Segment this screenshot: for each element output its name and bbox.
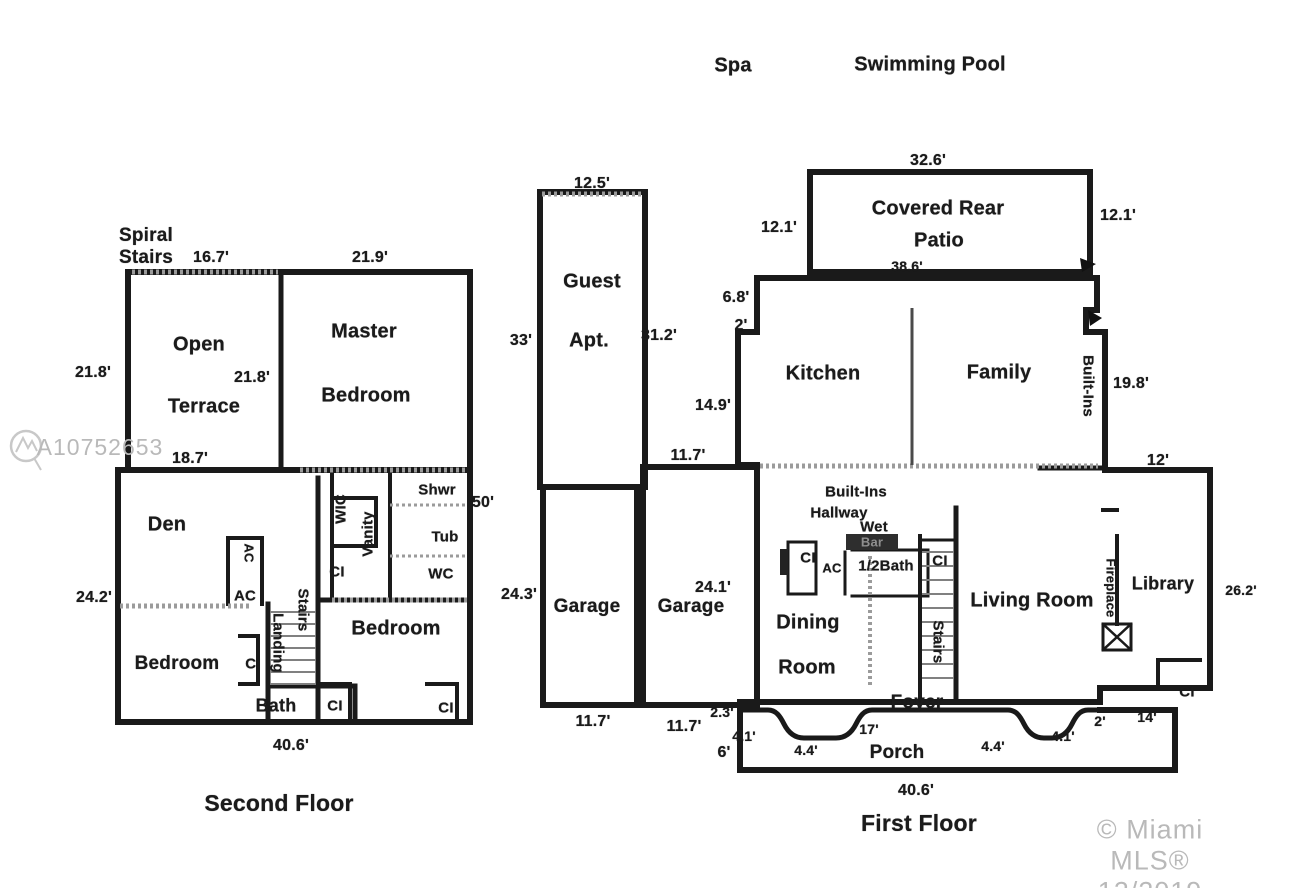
dim-library-bottom: 14': [1137, 709, 1157, 725]
label-hallway-built-ins: Built-Ins: [825, 483, 887, 500]
label-spiral-stairs: Spiral Stairs: [119, 225, 173, 269]
dim-porch-left-depth: 6': [717, 744, 730, 762]
label-garage-right: Garage: [658, 596, 725, 618]
label-built-ins-wall: Built-Ins: [1079, 355, 1096, 417]
dim-garage-right-bottom: 11.7': [666, 718, 701, 736]
label-family: Family: [967, 362, 1032, 385]
label-sf-ac-lower: AC: [234, 587, 256, 604]
dim-guest-left: 33': [510, 332, 532, 350]
label-sf-landing: Landing: [269, 613, 286, 673]
floor-plan-drawing: [0, 0, 1309, 888]
dim-porch-2: 2': [1094, 713, 1106, 729]
watermark-copyright: © Miami MLS® 12/2019: [1071, 814, 1230, 888]
hall-closet-door: [780, 549, 788, 575]
dim-ff-bottom: 40.6': [898, 782, 934, 800]
label-guest-apt-1: Guest: [563, 271, 621, 294]
dim-family-right: 19.8': [1113, 375, 1149, 393]
label-sf-ci-bath: CI: [327, 697, 342, 714]
dim-terrace-inner: 21.8': [234, 369, 270, 387]
label-sf-ci-right: CI: [438, 699, 453, 716]
label-covered-rear-patio-1: Covered Rear: [872, 198, 1004, 221]
dim-sf-left-side: 24.2': [76, 589, 112, 607]
dim-garage-right-top: 11.7': [670, 447, 705, 465]
label-vanity: Vanity: [359, 511, 376, 556]
dim-guest-top: 12.5': [574, 175, 610, 193]
label-half-bath: 1/2Bath: [858, 557, 914, 574]
dim-patio-top: 32.6': [910, 152, 946, 170]
dim-sf-top-left: 16.7': [193, 249, 229, 267]
dim-patio-right: 12.1': [1100, 207, 1136, 225]
wall-porch-scallop: [744, 710, 1098, 738]
label-dining-room-2: Room: [778, 657, 835, 680]
dim-kitchen-step-a: 6.8': [723, 289, 750, 307]
dim-porch-center: 17': [859, 721, 879, 737]
wall-patio: [810, 172, 1090, 272]
dim-garage-left-bottom: 11.7': [575, 713, 610, 731]
label-fireplace: Fireplace: [1103, 559, 1118, 618]
dim-garage-left-side: 24.3': [501, 586, 537, 604]
label-sf-ac-upper: AC: [241, 543, 256, 562]
label-wet-bar-2: Bar: [861, 536, 883, 551]
dim-porch-step: 2.3': [710, 704, 734, 720]
label-porch: Porch: [870, 742, 925, 764]
dim-library-top: 12': [1147, 452, 1169, 470]
title-second-floor: Second Floor: [204, 790, 353, 816]
dim-porch-44-left: 4.4': [794, 742, 818, 758]
label-sf-ci-hall: CI: [329, 563, 344, 580]
label-ff-ac: AC: [822, 562, 841, 577]
label-covered-rear-patio-2: Patio: [914, 230, 964, 253]
label-dining-room-1: Dining: [776, 612, 839, 635]
dim-sf-top-right: 21.9': [352, 249, 388, 267]
label-ff-stairs: Stairs: [929, 621, 946, 664]
label-open-terrace-2: Terrace: [168, 396, 240, 419]
label-living-room: Living Room: [970, 590, 1093, 613]
dim-terrace-left: 21.8': [75, 364, 111, 382]
label-bath: Bath: [256, 696, 297, 717]
label-kitchen: Kitchen: [786, 363, 861, 386]
dim-library-right: 26.2': [1225, 582, 1257, 598]
floor-plan-page: Spa Swimming Pool A10752653 © Miami MLS®…: [0, 0, 1309, 888]
dim-kitchen-left: 14.9': [695, 397, 731, 415]
label-swimming-pool: Swimming Pool: [854, 54, 1006, 77]
dim-sf-right-side: 50': [472, 494, 494, 512]
dim-patio-bottom: 38.6': [891, 258, 923, 274]
dim-guest-right: 31.2': [641, 327, 677, 345]
label-ff-ci-hall: CI: [800, 549, 815, 566]
label-wic: WIC: [332, 494, 349, 524]
label-foyer: Foyer: [891, 692, 944, 714]
dim-porch-41-left: 4.1': [732, 728, 756, 744]
label-hallway: Hallway: [810, 504, 867, 521]
dim-porch-41-right: 4.1': [1051, 728, 1075, 744]
label-bedroom-right: Bedroom: [351, 618, 440, 641]
label-garage-left: Garage: [554, 596, 621, 618]
label-wet-bar-1: Wet: [860, 518, 888, 535]
label-sf-ci-bedroom: CI: [245, 655, 260, 672]
label-guest-apt-2: Apt.: [569, 330, 609, 353]
label-open-terrace-1: Open: [173, 334, 225, 357]
dim-garage-right-width: 24.1': [695, 579, 731, 597]
dim-kitchen-step-b: 2': [734, 317, 747, 335]
dim-patio-left: 12.1': [761, 219, 797, 237]
wall-first-floor-outline: [738, 278, 1210, 702]
label-spa: Spa: [714, 55, 751, 78]
mls-logo-mountains: [16, 438, 37, 452]
label-bedroom-left: Bedroom: [135, 653, 220, 675]
label-library: Library: [1132, 574, 1194, 595]
label-shower: Shwr: [418, 481, 455, 498]
label-ff-ci-library: CI: [1179, 683, 1194, 700]
label-tub: Tub: [432, 528, 459, 545]
label-ff-ci-stairs: CI: [932, 552, 947, 569]
fireplace-x: [1103, 624, 1131, 650]
label-sf-stairs: Stairs: [294, 589, 311, 632]
label-den: Den: [148, 514, 186, 537]
title-first-floor: First Floor: [861, 810, 977, 836]
label-master-bedroom-1: Master: [331, 321, 397, 344]
dim-sf-bottom: 40.6': [273, 737, 309, 755]
label-wc: WC: [428, 565, 453, 582]
watermark-photo-id: A10752653: [37, 434, 164, 460]
dim-porch-44-right: 4.4': [981, 738, 1005, 754]
dim-terrace-bottom: 18.7': [172, 450, 208, 468]
label-master-bedroom-2: Bedroom: [321, 385, 410, 408]
